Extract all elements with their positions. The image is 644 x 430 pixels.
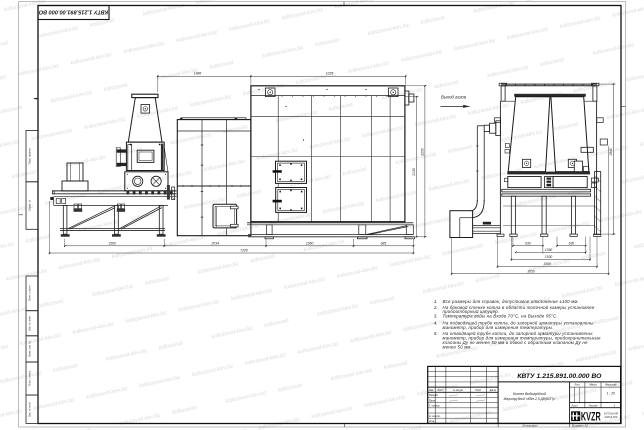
svg-text:Котел Водогрійний: Котел Водогрійний — [513, 392, 546, 396]
svg-text:Перв. примен.: Перв. примен. — [29, 147, 32, 164]
svg-text:Инв. № дубл.: Инв. № дубл. — [29, 315, 32, 331]
svg-text:Утв.: Утв. — [429, 419, 435, 423]
svg-text:1.: 1. — [434, 299, 438, 304]
svg-text:3050: 3050 — [527, 269, 535, 273]
svg-text:ЗАВОД РЗР: ЗАВОД РЗР — [605, 416, 618, 419]
svg-text:Подп. и дата: Подп. и дата — [29, 285, 32, 301]
svg-text:Жаротрубний «КВт-2,5-ДВ(ВЛП)»: Жаротрубний «КВт-2,5-ДВ(ВЛП)» — [503, 397, 556, 401]
svg-text:2250: 2250 — [420, 148, 424, 157]
svg-text:Лист: Лист — [436, 389, 443, 392]
svg-text:Масштаб: Масштаб — [605, 384, 617, 387]
svg-text:Инв. № подл.: Инв. № подл. — [29, 401, 32, 417]
svg-text:Лист: Лист — [570, 405, 577, 408]
svg-text:Дата: Дата — [489, 389, 497, 392]
svg-text:630: 630 — [525, 241, 531, 245]
svg-text:2.: 2. — [433, 305, 438, 310]
svg-text:Подп. и дата: Подп. и дата — [29, 370, 32, 386]
svg-text:Лит.: Лит. — [573, 384, 580, 387]
svg-text:630: 630 — [569, 241, 575, 245]
svg-text:Масса: Масса — [589, 384, 597, 387]
svg-text:1486: 1486 — [194, 72, 202, 76]
svg-text:Разраб.: Разраб. — [429, 393, 439, 397]
svg-text:1025: 1025 — [326, 72, 334, 76]
svg-text:Н. контр.: Н. контр. — [429, 414, 441, 418]
svg-text:685: 685 — [381, 241, 387, 245]
svg-text:КВТУ 1.215.891.00.000 ВО: КВТУ 1.215.891.00.000 ВО — [38, 9, 108, 15]
svg-text:Справ. №: Справ. № — [29, 200, 32, 212]
svg-text:Пров.: Пров. — [429, 398, 436, 402]
svg-text:2034: 2034 — [210, 241, 219, 245]
svg-text:№ докум.: № докум. — [453, 389, 464, 392]
svg-text:4.: 4. — [434, 320, 438, 325]
svg-text:7200: 7200 — [240, 249, 248, 253]
svg-text:2135: 2135 — [412, 168, 416, 177]
svg-text:1530: 1530 — [545, 255, 553, 259]
svg-text:2940: 2940 — [609, 148, 613, 156]
svg-text:1360: 1360 — [545, 248, 553, 252]
svg-text:КОТЕЛЬНИЙ: КОТЕЛЬНИЙ — [604, 412, 618, 415]
svg-text:1906: 1906 — [543, 262, 551, 266]
svg-text:Изм.: Изм. — [429, 389, 434, 392]
svg-text:Т. контр.: Т. контр. — [429, 404, 440, 408]
svg-text:Все размеры для справок, допус: Все размеры для справок, допустимое откл… — [443, 299, 579, 304]
svg-text:Копировал: Копировал — [523, 424, 538, 428]
svg-text:КВТУ 1.215.891.00.000 ВО: КВТУ 1.215.891.00.000 ВО — [517, 373, 602, 380]
svg-text:менее 50 мм.: менее 50 мм. — [443, 345, 472, 350]
svg-text:1 : 20: 1 : 20 — [607, 392, 616, 396]
svg-text:1560: 1560 — [108, 241, 116, 245]
svg-text:Выход газов: Выход газов — [441, 94, 467, 99]
svg-text:Подп.: Подп. — [475, 389, 482, 392]
svg-text:Температура воды на Входе 70°С: Температура воды на Входе 70°С, на Выход… — [443, 314, 558, 319]
svg-text:3.: 3. — [434, 314, 438, 319]
svg-text:Формат А2: Формат А2 — [572, 424, 589, 428]
svg-text:5.: 5. — [434, 331, 438, 336]
svg-text:Листов: Листов — [588, 405, 598, 408]
svg-text:манометр, прибор для измерения: манометр, прибор для измерения температу… — [443, 325, 554, 330]
svg-text:KVZR: KVZR — [581, 412, 601, 424]
svg-text:1950: 1950 — [306, 241, 314, 245]
svg-text:Взам. инв. №: Взам. инв. № — [29, 341, 32, 357]
